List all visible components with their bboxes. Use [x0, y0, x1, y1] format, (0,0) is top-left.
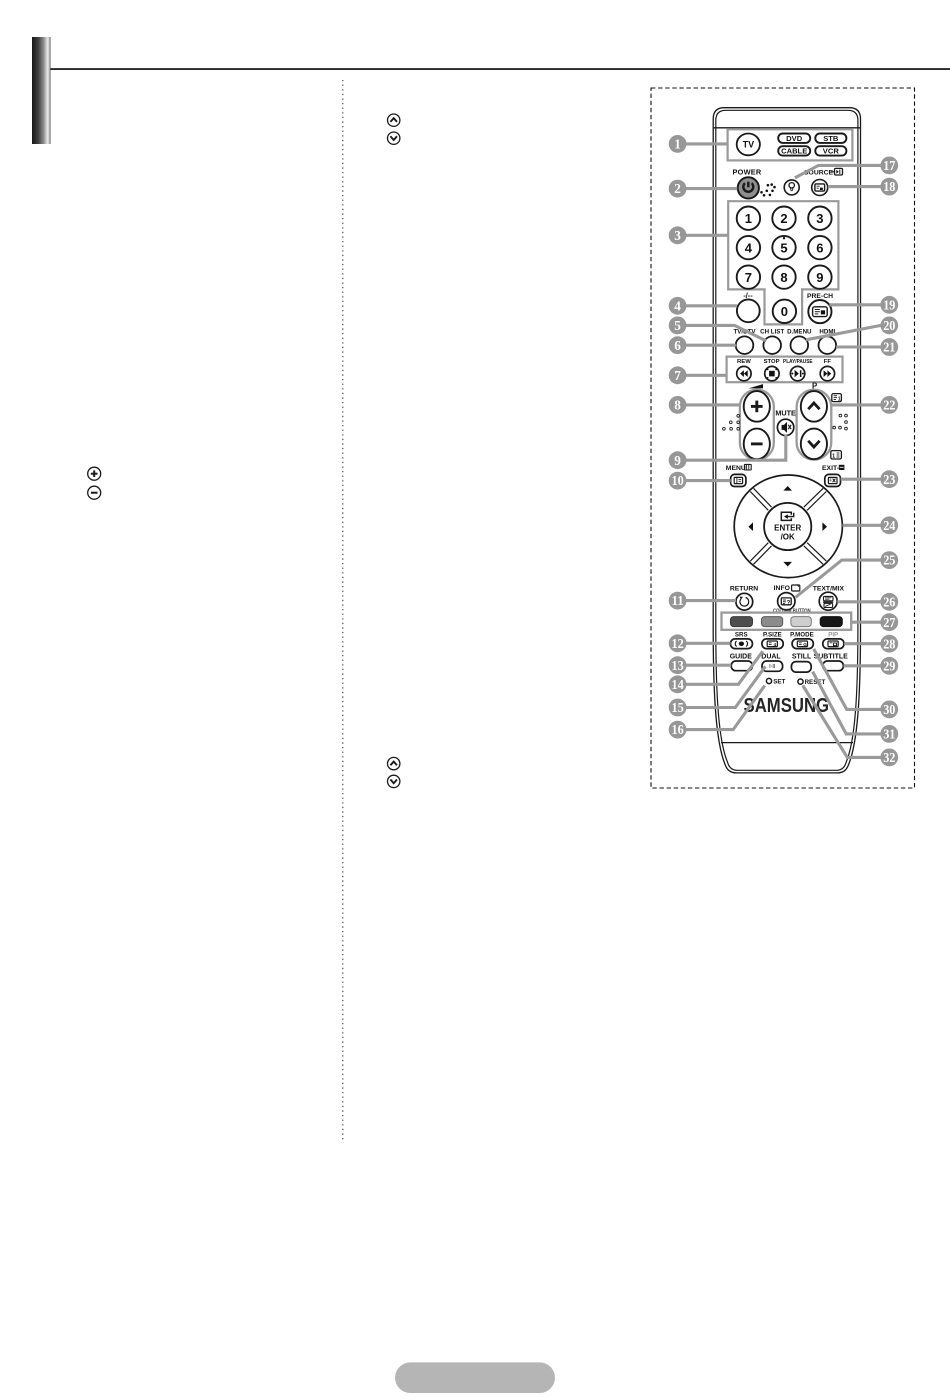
svg-text:4: 4 [774, 642, 777, 647]
svg-text:21: 21 [883, 340, 895, 355]
svg-text:POWER: POWER [733, 168, 762, 177]
svg-text:FF: FF [824, 359, 832, 365]
svg-text:2: 2 [780, 211, 787, 226]
svg-text:D.MENU: D.MENU [787, 329, 812, 336]
svg-text:9: 9 [816, 270, 823, 285]
svg-text:9: 9 [674, 453, 681, 468]
svg-text:STB: STB [823, 134, 839, 143]
svg-text:4: 4 [745, 240, 753, 255]
svg-text:PRE-CH: PRE-CH [807, 293, 833, 300]
svg-text:17: 17 [883, 158, 896, 173]
svg-text:3: 3 [674, 228, 681, 243]
svg-text:18: 18 [883, 179, 896, 194]
svg-text:7: 7 [674, 368, 681, 383]
svg-text:4: 4 [674, 298, 681, 313]
svg-text:STOP: STOP [764, 359, 780, 365]
svg-text:6: 6 [674, 338, 681, 353]
svg-text:PIP: PIP [828, 632, 838, 639]
svg-text:0: 0 [781, 304, 788, 319]
svg-text:CABLE: CABLE [781, 147, 807, 156]
svg-text:RESET: RESET [805, 679, 826, 686]
svg-text:8: 8 [674, 398, 681, 413]
svg-text:G: G [803, 642, 807, 647]
svg-text:19: 19 [883, 297, 896, 312]
svg-text:31: 31 [883, 727, 895, 742]
svg-text:P.MODE: P.MODE [790, 632, 814, 639]
svg-text:DUAL: DUAL [761, 653, 781, 660]
svg-text:DVD: DVD [786, 134, 803, 143]
svg-text:27: 27 [883, 615, 896, 630]
svg-text:11: 11 [672, 593, 684, 608]
svg-text:7: 7 [745, 270, 752, 285]
svg-text:1: 1 [674, 137, 681, 152]
svg-text:1: 1 [745, 211, 752, 226]
svg-text:14: 14 [672, 677, 685, 692]
svg-text:?: ? [787, 601, 791, 607]
svg-text:REW: REW [737, 359, 751, 365]
svg-text:GUIDE: GUIDE [730, 653, 753, 660]
svg-text:24: 24 [883, 518, 896, 533]
svg-text:26: 26 [883, 594, 896, 609]
svg-text:30: 30 [883, 702, 896, 717]
svg-text:29: 29 [883, 658, 896, 673]
svg-text:/OK: /OK [781, 533, 795, 542]
svg-text:INFO: INFO [774, 585, 790, 592]
svg-text:23: 23 [883, 472, 896, 487]
svg-text:10: 10 [672, 473, 685, 488]
svg-text:1: 1 [838, 396, 841, 402]
svg-text:16: 16 [672, 722, 685, 737]
svg-text:13: 13 [672, 658, 685, 673]
svg-text:8: 8 [780, 270, 787, 285]
svg-text:3: 3 [816, 211, 823, 226]
svg-text:STILL: STILL [792, 654, 812, 661]
svg-text:12: 12 [672, 636, 685, 651]
svg-text:2: 2 [674, 181, 681, 196]
svg-text:SET: SET [773, 678, 785, 685]
svg-text:I·II: I·II [769, 664, 776, 670]
svg-text:PLAY/PAUSE: PLAY/PAUSE [783, 359, 813, 365]
svg-text:5: 5 [674, 318, 681, 333]
svg-text:25: 25 [883, 553, 896, 568]
svg-text:P.SIZE: P.SIZE [763, 632, 782, 639]
svg-text:RETURN: RETURN [730, 586, 758, 593]
svg-text:6: 6 [816, 240, 823, 255]
svg-text:ENTER: ENTER [774, 523, 801, 532]
svg-text:MENU: MENU [726, 465, 746, 472]
svg-text:22: 22 [883, 398, 896, 413]
svg-text:1: 1 [832, 453, 835, 459]
svg-text:32: 32 [883, 750, 896, 765]
svg-text:20: 20 [883, 318, 896, 333]
svg-text:MUTE: MUTE [775, 408, 796, 417]
svg-text:5: 5 [780, 240, 787, 255]
svg-text:EXIT-: EXIT- [822, 465, 839, 472]
svg-text:CH LIST: CH LIST [760, 329, 784, 336]
svg-text:VCR: VCR [823, 147, 840, 156]
svg-text:SRS: SRS [735, 632, 748, 639]
svg-text:TV: TV [743, 140, 755, 150]
svg-text:15: 15 [672, 700, 685, 715]
svg-text:28: 28 [883, 636, 896, 651]
